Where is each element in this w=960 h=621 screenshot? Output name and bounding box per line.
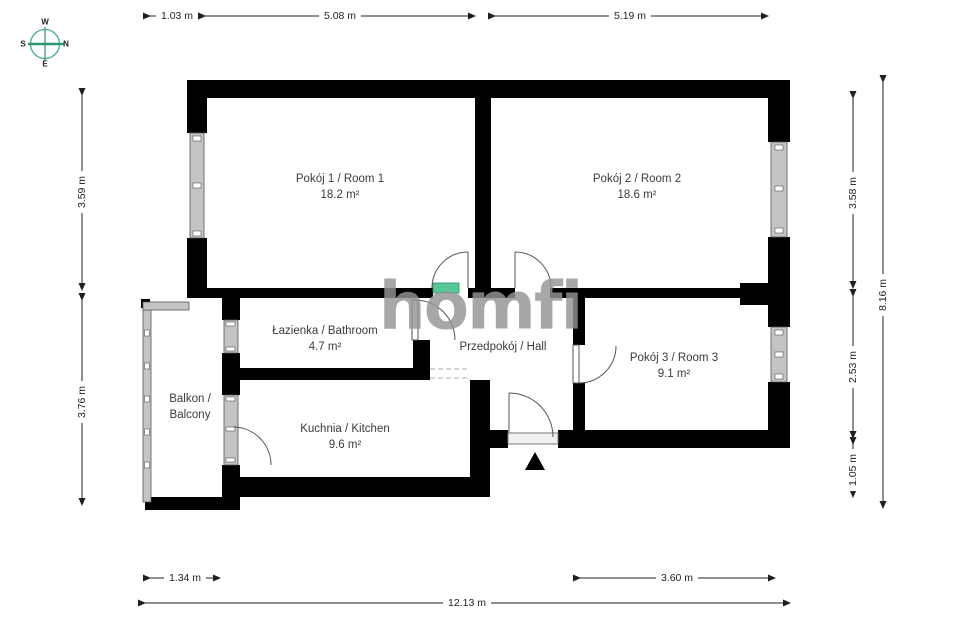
window-ticks	[145, 136, 784, 468]
entrance-threshold-icon	[508, 433, 558, 444]
room3-area: 9.1 m²	[658, 368, 691, 380]
door-bathroom-arc-icon	[415, 300, 455, 340]
door-bathroom-leaf-icon	[412, 300, 418, 340]
compass-north-label: N	[63, 40, 69, 49]
dim-top-left: 1.03 m	[156, 10, 198, 22]
dim-left-upper: 3.59 m	[76, 171, 88, 213]
dim-right-upper: 3.58 m	[847, 172, 859, 214]
balcony-label: Balkon / Balcony	[169, 391, 211, 423]
room1-area: 18.2 m²	[321, 189, 360, 201]
balcony-railing-top-icon	[143, 302, 189, 310]
dim-top-right: 5.19 m	[609, 10, 651, 22]
kitchen-name: Kuchnia / Kitchen	[300, 423, 390, 435]
dim-bottom-left: 1.34 m	[164, 572, 206, 584]
kitchen-label: Kuchnia / Kitchen 9.6 m²	[300, 421, 390, 453]
bathroom-area: 4.7 m²	[309, 341, 342, 353]
kitchen-area: 9.6 m²	[329, 439, 362, 451]
bathroom-name: Łazienka / Bathroom	[272, 325, 377, 337]
dim-bottom-right: 3.60 m	[656, 572, 698, 584]
dim-right-lower: 1.05 m	[847, 449, 859, 491]
floorplan-drawing	[0, 0, 960, 621]
floorplan-page: { "watermark": { "text": "homfi" }, "com…	[0, 0, 960, 621]
hall-label: Przedpokój / Hall	[460, 339, 547, 355]
room2-name: Pokój 2 / Room 2	[593, 173, 681, 185]
compass-east-label: E	[42, 60, 47, 69]
room3-label: Pokój 3 / Room 3 9.1 m²	[630, 350, 718, 382]
dim-left-lower: 3.76 m	[76, 381, 88, 423]
room3-name: Pokój 3 / Room 3	[630, 352, 718, 364]
door-entrance-arc-icon	[509, 393, 553, 437]
bathroom-label: Łazienka / Bathroom 4.7 m²	[272, 323, 377, 355]
room2-area: 18.6 m²	[618, 189, 657, 201]
room2-label: Pokój 2 / Room 2 18.6 m²	[593, 171, 681, 203]
dim-bottom-total: 12.13 m	[443, 597, 491, 609]
compass-west-label: W	[41, 18, 49, 27]
open-passage-dashes-icon	[430, 369, 470, 378]
room1-name: Pokój 1 / Room 1	[296, 173, 384, 185]
green-door-marker-icon	[433, 283, 459, 293]
dim-top-mid: 5.08 m	[319, 10, 361, 22]
door-room3-leaf-icon	[573, 345, 579, 383]
balcony-name-line2: Balcony	[170, 409, 211, 421]
entrance-arrow-icon	[525, 452, 545, 470]
door-balcony-arc-icon	[233, 427, 271, 465]
compass-south-label: S	[20, 40, 25, 49]
room1-label: Pokój 1 / Room 1 18.2 m²	[296, 171, 384, 203]
compass-icon	[28, 27, 64, 61]
dim-right-mid: 2.53 m	[847, 346, 859, 388]
door-room3-arc-icon	[579, 346, 616, 383]
balcony-name-line1: Balkon /	[169, 393, 211, 405]
hall-name: Przedpokój / Hall	[460, 341, 547, 353]
door-room2-arc-icon	[515, 252, 551, 288]
dim-right-total: 8.16 m	[877, 274, 889, 316]
